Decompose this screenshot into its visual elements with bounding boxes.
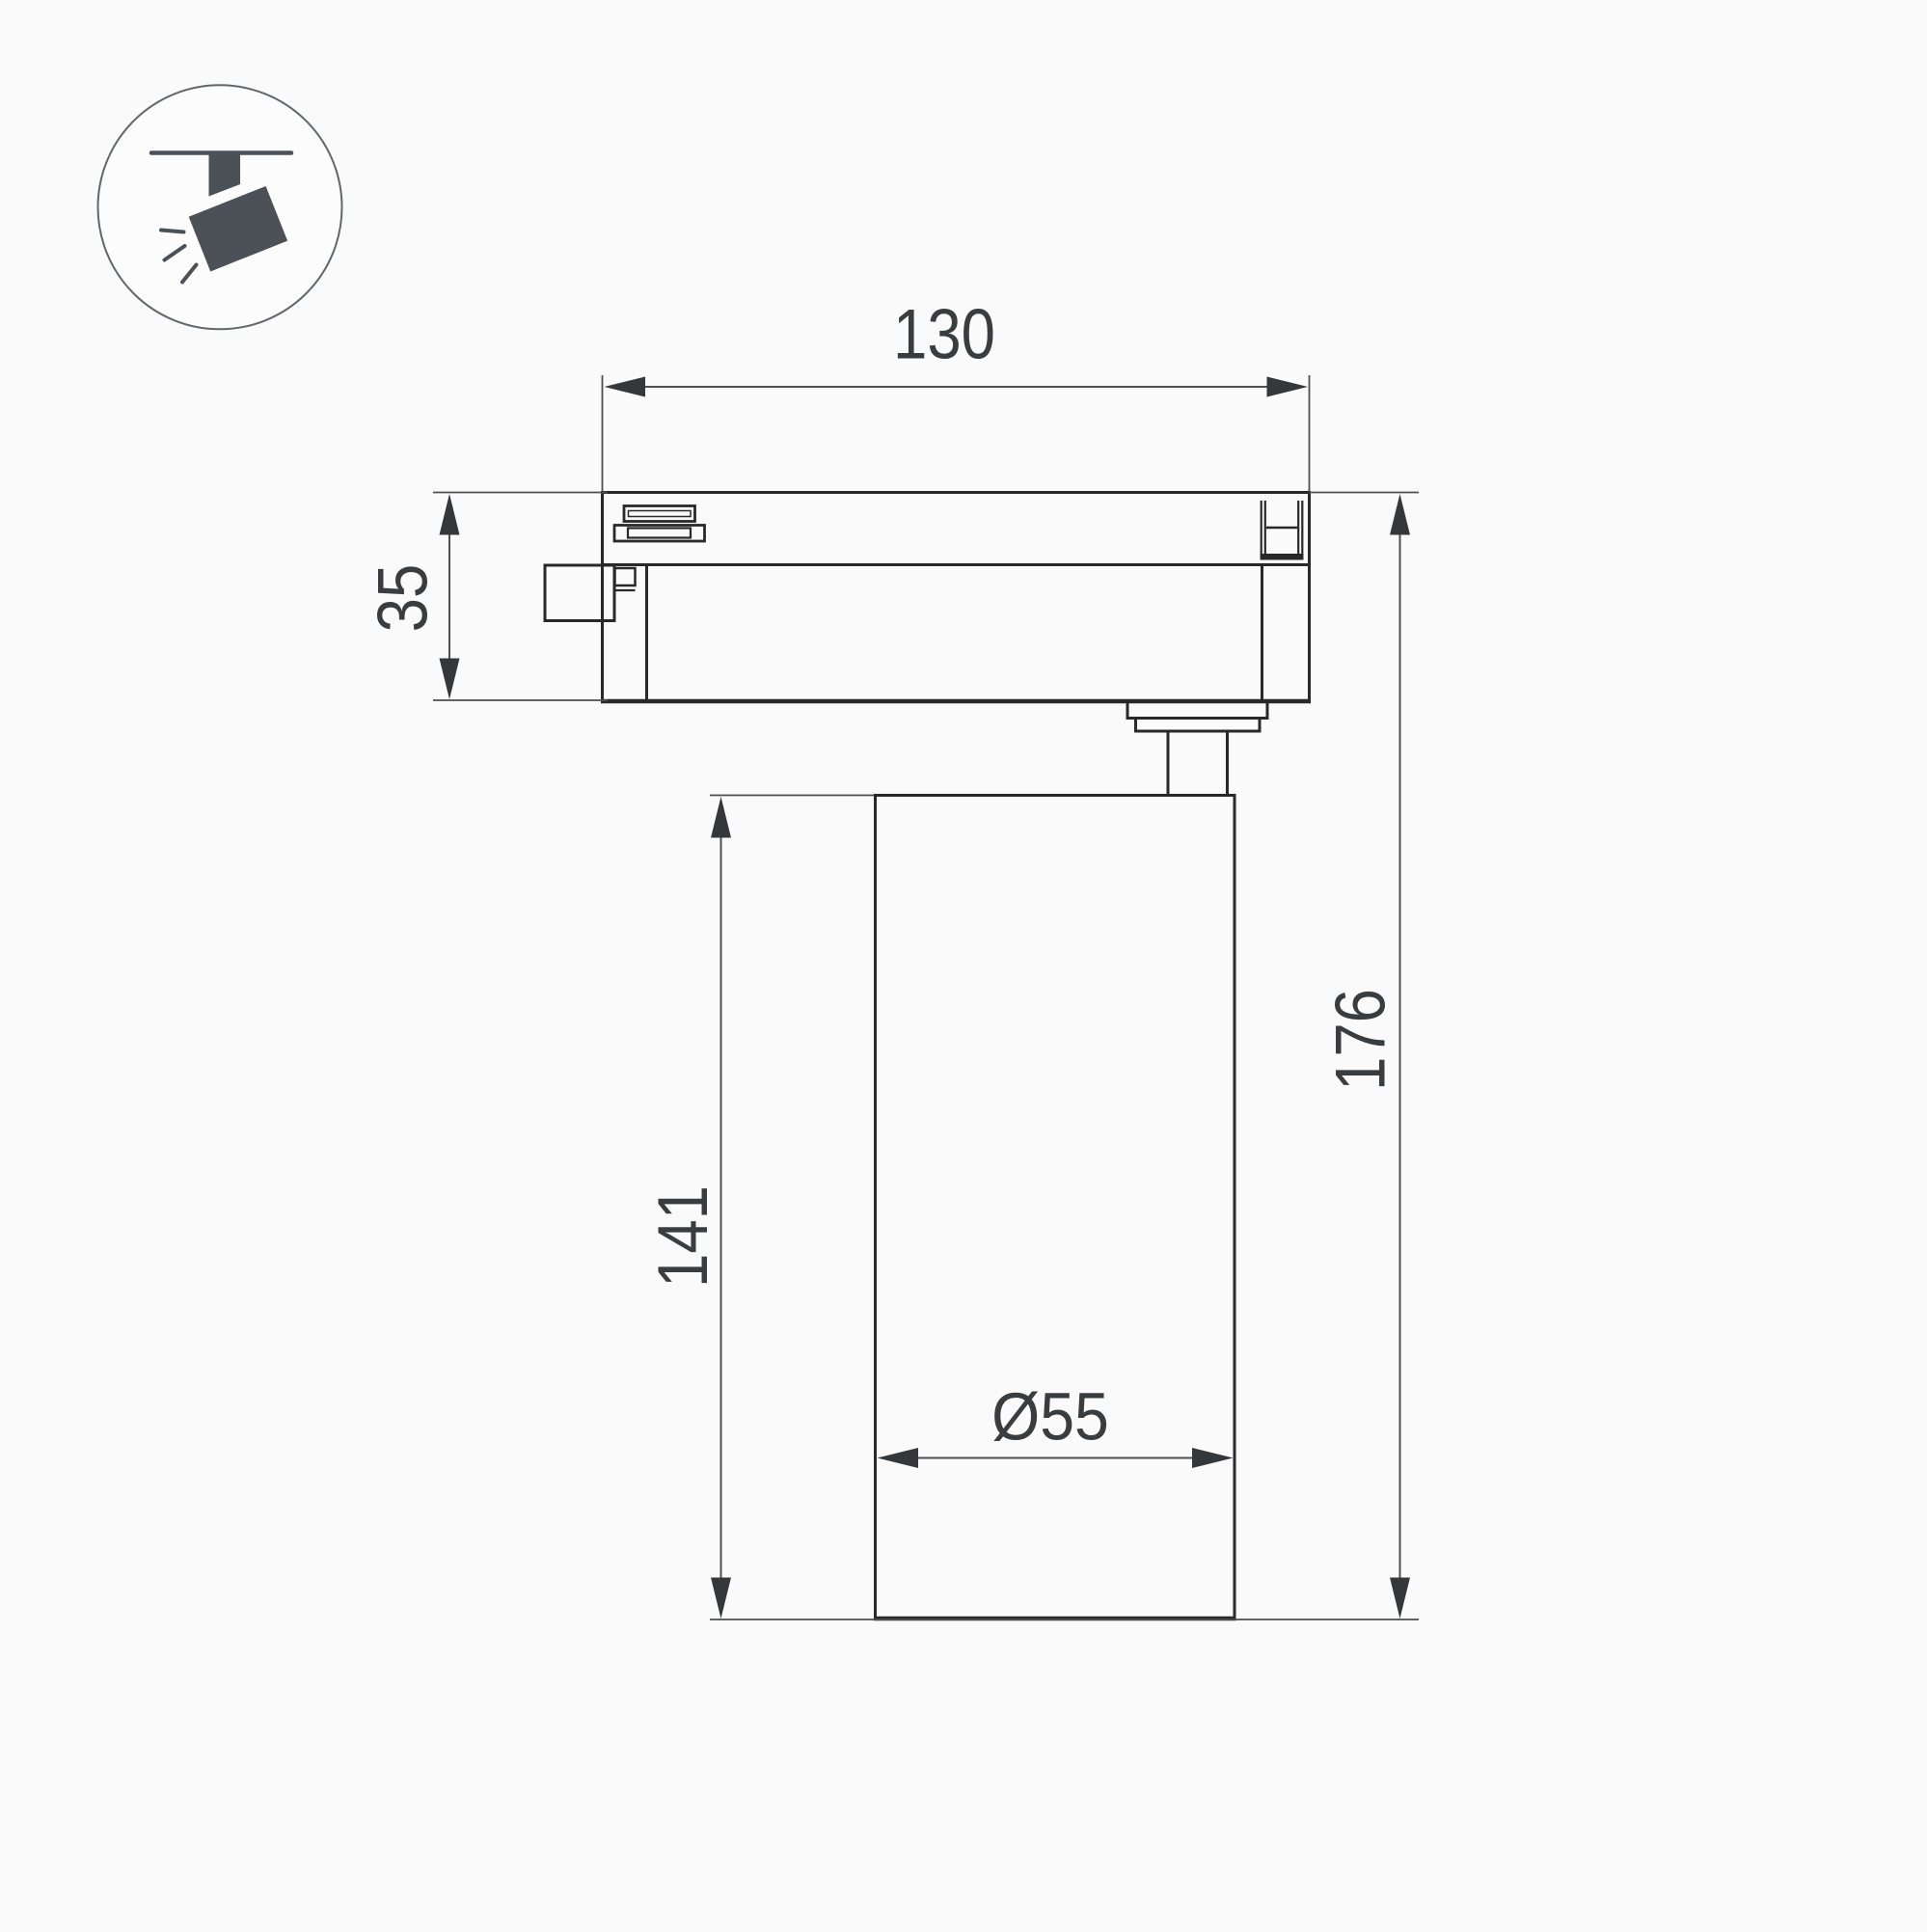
svg-text:176: 176 (1321, 989, 1399, 1091)
svg-text:Ø55: Ø55 (991, 1379, 1109, 1455)
svg-text:35: 35 (364, 564, 442, 633)
svg-text:141: 141 (644, 1185, 722, 1288)
svg-text:130: 130 (893, 295, 995, 373)
